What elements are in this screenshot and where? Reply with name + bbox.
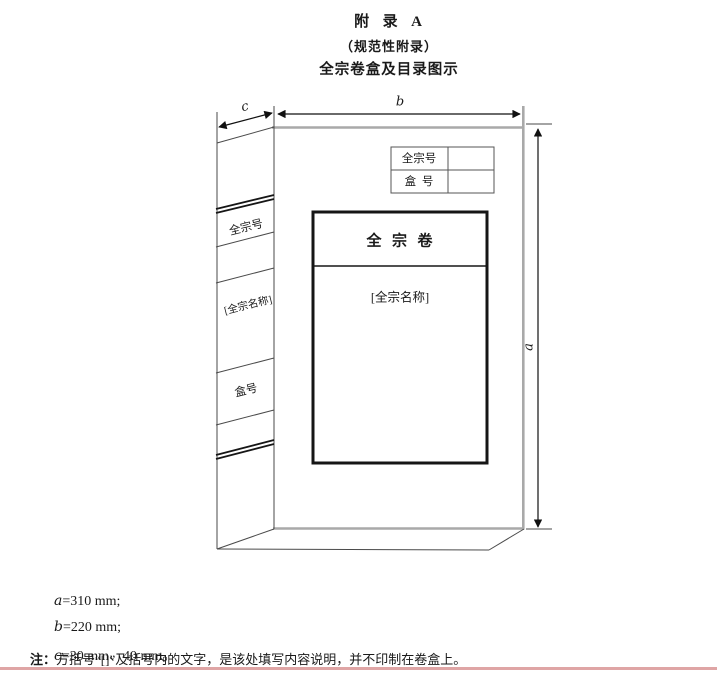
- corner-table-row1-label: 全宗号: [402, 150, 437, 166]
- note-line: 注：方括号“[]”及括号内的文字，是该处填写内容说明，并不印制在卷盒上。: [30, 649, 466, 668]
- appendix-subtitle: （规范性附录）: [340, 36, 438, 55]
- appendix-caption: 全宗卷盒及目录图示: [319, 58, 459, 79]
- dim-label-a: a: [522, 343, 537, 351]
- card-body-placeholder: [全宗名称]: [371, 287, 429, 306]
- note-prefix: 注：: [30, 652, 56, 667]
- dim-label-b: b: [396, 95, 404, 110]
- dimension-extension-lines: [526, 124, 552, 529]
- note-text: 方括号“[]”及括号内的文字，是该处填写内容说明，并不印制在卷盒上。: [56, 652, 466, 667]
- card-title: 全 宗 卷: [366, 230, 433, 251]
- box-spine-outline: [217, 106, 524, 550]
- appendix-title: 附 录 A: [354, 10, 424, 31]
- archive-box-diagram: [0, 0, 717, 673]
- corner-table-row2-label: 盒 号: [405, 173, 434, 189]
- footer-rule: [0, 667, 717, 670]
- document-page: 附 录 A （规范性附录） 全宗卷盒及目录图示 全宗号 [全宗名称] 盒号 全宗…: [0, 0, 717, 673]
- dimension-lines: [219, 113, 538, 527]
